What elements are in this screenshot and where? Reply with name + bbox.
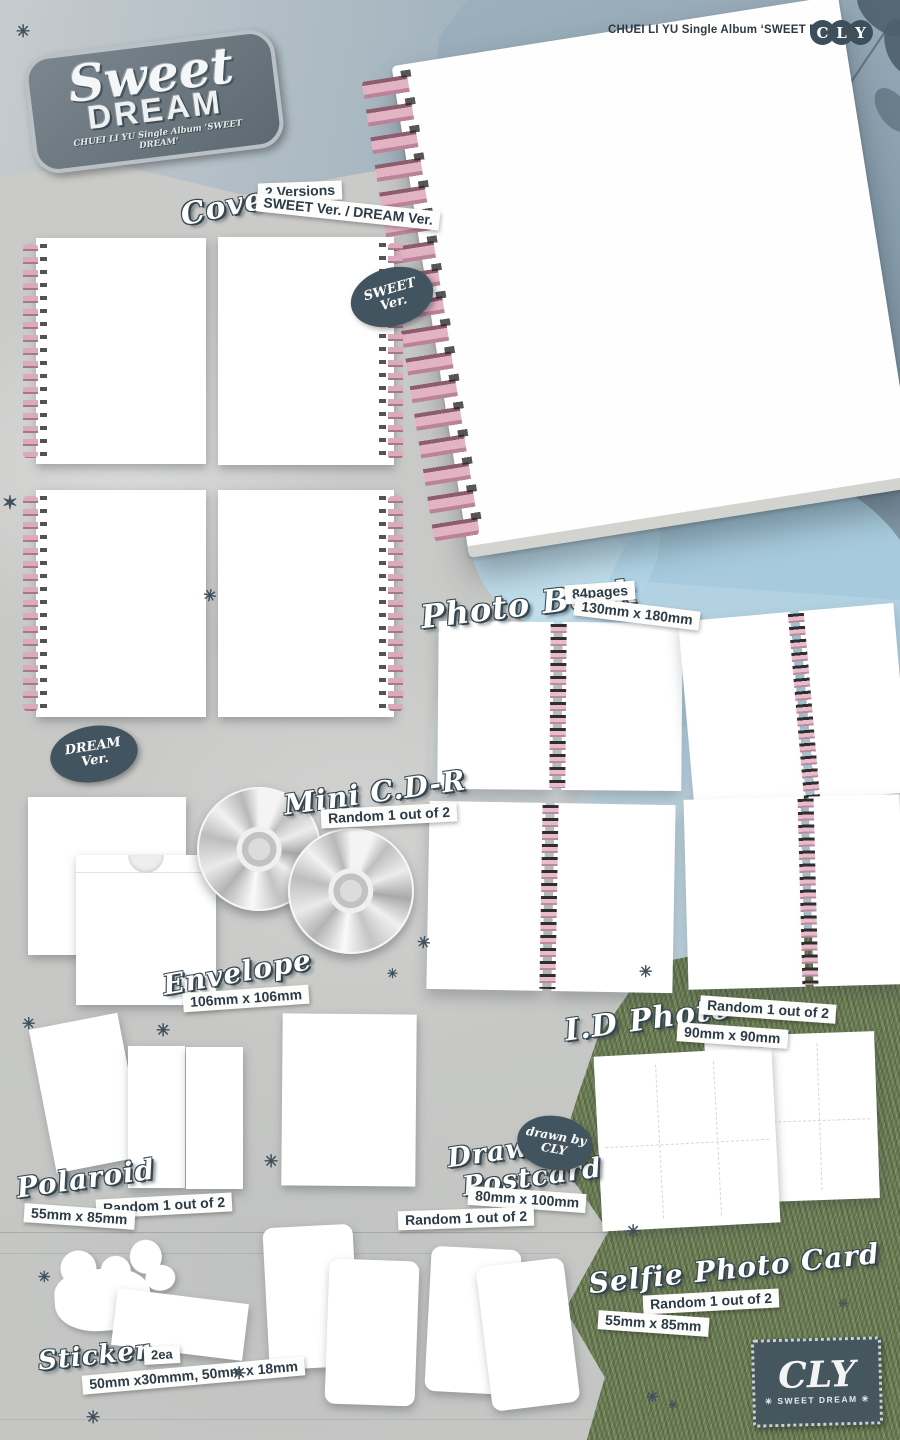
paper-seam bbox=[0, 1232, 900, 1233]
book-spiral-binding bbox=[550, 624, 567, 788]
cover-spiral-binding bbox=[23, 244, 38, 458]
cly-logo: C L Y bbox=[816, 20, 873, 45]
badge-line: CLY bbox=[540, 1141, 568, 1158]
cover-back-sweet bbox=[218, 237, 394, 465]
photo-book-spread bbox=[684, 794, 900, 990]
sparkle-icon: ✶ bbox=[2, 492, 18, 515]
sparkle-icon: ✳ bbox=[646, 1388, 659, 1406]
sparkle-icon: ✳ bbox=[264, 1152, 278, 1172]
cover-spiral-holes bbox=[40, 496, 47, 711]
selfie-photo-card bbox=[475, 1257, 580, 1412]
sparkle-icon: ✳ bbox=[86, 1408, 100, 1428]
sparkle-icon: ✳ bbox=[387, 966, 398, 982]
mini-cd-disc bbox=[288, 828, 414, 954]
badge-line: Ver. bbox=[80, 752, 109, 770]
cut-line bbox=[655, 1064, 664, 1218]
drawing-postcard-random-tag: Random 1 out of 2 bbox=[398, 1207, 535, 1231]
cut-line bbox=[817, 1043, 823, 1190]
cover-back-dream bbox=[218, 490, 394, 717]
cover-spiral-binding bbox=[23, 496, 38, 711]
sparkle-icon: ✳ bbox=[416, 932, 432, 954]
cover-spiral-binding bbox=[388, 496, 403, 711]
stamp-brand-text: CLY bbox=[778, 1357, 856, 1393]
polaroid-card-back bbox=[186, 1047, 243, 1189]
sparkle-icon: ✳ bbox=[201, 585, 218, 607]
sparkle-icon: ✳ bbox=[639, 962, 652, 982]
selfie-photo-card bbox=[324, 1258, 419, 1406]
photo-book-spread bbox=[437, 621, 682, 791]
cut-line bbox=[713, 1061, 722, 1215]
sparkle-icon: ✳ bbox=[232, 1364, 246, 1384]
book-page-right bbox=[809, 794, 900, 986]
book-page-right bbox=[562, 622, 683, 791]
cly-letter-y: Y bbox=[848, 20, 873, 45]
drawing-postcard-card bbox=[281, 1013, 416, 1186]
sparkle-icon: ✳ bbox=[16, 22, 30, 42]
book-page-right bbox=[552, 803, 676, 993]
sparkle-icon: ✳ bbox=[38, 1268, 51, 1286]
cly-stamp: CLY ✳ SWEET DREAM ✳ bbox=[751, 1336, 883, 1427]
cover-spiral-holes bbox=[379, 496, 386, 711]
photo-book-spread bbox=[678, 603, 900, 811]
book-page-left bbox=[684, 797, 806, 990]
book-spiral-binding bbox=[540, 805, 559, 989]
book-page-left bbox=[678, 612, 806, 811]
spiral-notebook-mockup bbox=[359, 0, 900, 569]
sparkle-icon: ✳ bbox=[668, 1398, 678, 1412]
cut-line bbox=[605, 1139, 769, 1149]
cover-front-sweet bbox=[36, 238, 206, 464]
stamp-subtitle-text: ✳ SWEET DREAM ✳ bbox=[765, 1394, 870, 1408]
cover-spiral-holes bbox=[40, 244, 47, 458]
book-page-left bbox=[426, 801, 545, 991]
album-packaging-poster: CHUEI LI YU Single Album ‘SWEET DREAM’ C… bbox=[0, 0, 900, 1440]
dream-version-badge: DREAM Ver. bbox=[46, 719, 142, 788]
cover-front-dream bbox=[36, 490, 206, 717]
sticker-count-tag: 2ea bbox=[144, 1345, 181, 1365]
id-photo-sheet-front bbox=[594, 1047, 781, 1231]
sparkle-icon: ✳ bbox=[626, 1222, 640, 1242]
sparkle-icon: ✳ bbox=[156, 1021, 170, 1041]
sparkle-icon: ✳ bbox=[22, 1014, 35, 1034]
sparkle-icon: ✳ bbox=[838, 1296, 849, 1312]
